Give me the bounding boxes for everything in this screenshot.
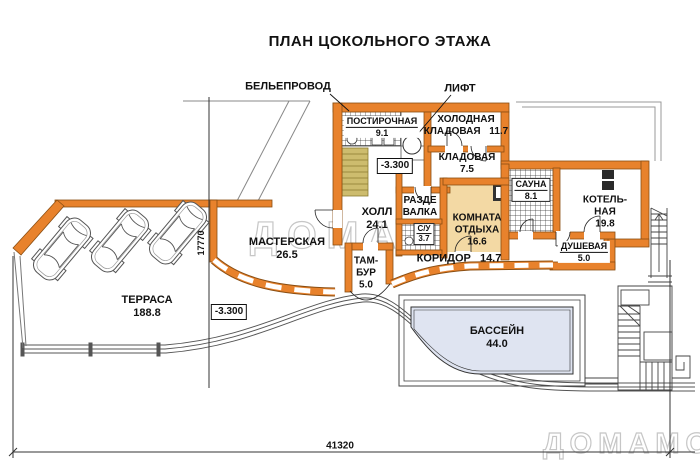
room-label-hall: ХОЛЛ 24.1 (362, 206, 393, 232)
room-label-pool: БАССЕЙН 44.0 (470, 325, 524, 351)
upper-floor-outline (516, 102, 661, 161)
room-label-cold-storage: ХОЛОДНАЯ КЛАДОВАЯ 11.7 (424, 114, 508, 138)
room-label-laundry: ПОСТИРОЧНАЯ 9.1 (344, 116, 420, 138)
curved-walls (214, 260, 553, 292)
elevator-symbol (403, 136, 421, 154)
wc-fixture (405, 237, 413, 245)
room-label-workshop: МАСТЕРСКАЯ 26.5 (249, 236, 325, 262)
room-label-sauna: САУНА 8.1 (511, 178, 550, 202)
room-label-vestibule: ТАМ- БУР 5.0 (354, 255, 378, 290)
dimension-overall-depth: 17770 (196, 230, 206, 255)
room-label-terrace: ТЕРРАСА 188.8 (121, 294, 172, 320)
callout-laundry-chute: БЕЛЬЕПРОВОД (245, 81, 331, 94)
elevation-mark-terrace: -3.300 (211, 304, 247, 320)
room-label-corridor: КОРИДОР 14.7 (417, 253, 502, 266)
floor-plan-drawing (0, 0, 700, 466)
ramp-outline (183, 101, 310, 201)
room-label-wc: С/У 3.7 (414, 223, 435, 245)
elevation-mark-floor: -3.300 (377, 158, 413, 174)
room-label-boiler: КОТЕЛЬ- НАЯ 19.8 (583, 194, 627, 229)
floor-plan-page: ДОМАМО ДОМАМО (0, 0, 700, 466)
exterior-stairs (618, 208, 690, 390)
terrace-side-lines (14, 252, 26, 348)
room-label-shower: ДУШЕВАЯ 5.0 (558, 241, 610, 263)
room-label-storage: КЛАДОВАЯ 7.5 (439, 152, 496, 176)
callout-lift: ЛИФТ (444, 83, 475, 96)
boiler-equipment (602, 170, 614, 179)
boiler-equipment (602, 181, 614, 190)
dimension-overall-width: 41320 (326, 441, 354, 452)
room-label-rest-room: КОМНАТА ОТДЫХА 16.6 (453, 212, 502, 247)
room-label-dressing: РАЗДЕ ВАЛКА (403, 195, 437, 219)
page-title: ПЛАН ЦОКОЛЬНОГО ЭТАЖА (269, 33, 492, 51)
